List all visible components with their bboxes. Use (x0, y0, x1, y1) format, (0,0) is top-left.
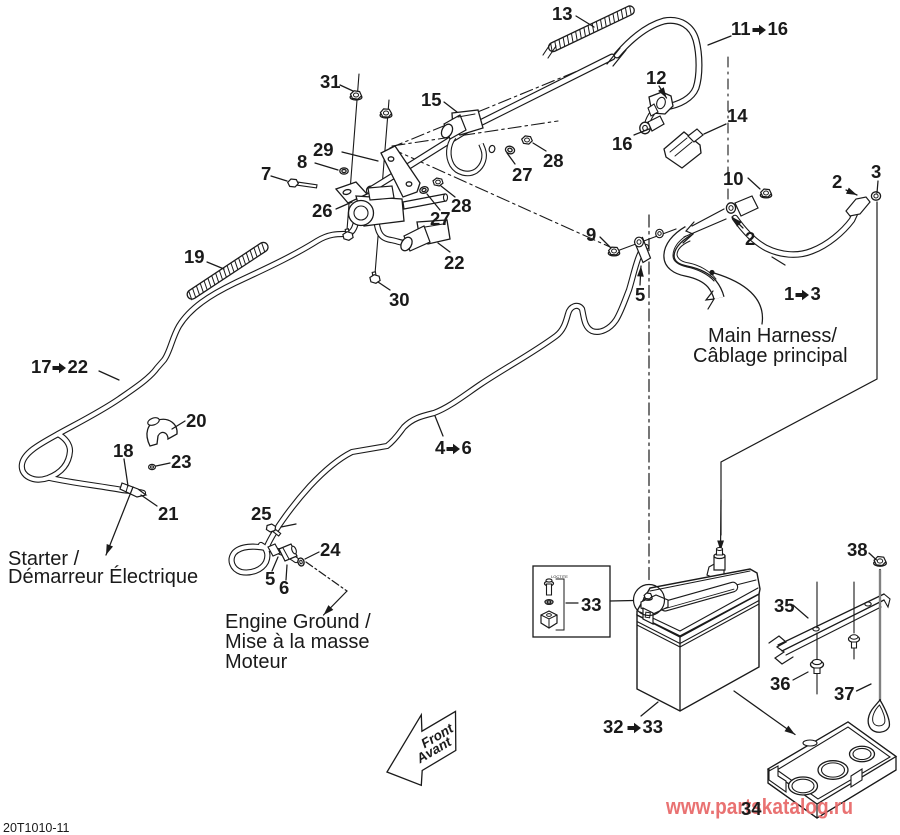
svg-text:29: 29 (313, 139, 334, 160)
svg-text:30: 30 (389, 289, 410, 310)
svg-text:19: 19 (184, 246, 205, 267)
svg-text:20T1010-11: 20T1010-11 (3, 821, 70, 835)
svg-text:14: 14 (727, 105, 748, 126)
svg-text:2: 2 (745, 228, 755, 249)
svg-text:Engine Ground /: Engine Ground / (225, 611, 371, 633)
svg-text:26: 26 (312, 200, 333, 221)
svg-text:3: 3 (871, 161, 881, 182)
svg-text:25: 25 (251, 503, 272, 524)
svg-text:6: 6 (279, 577, 289, 598)
svg-text:33: 33 (643, 716, 664, 737)
svg-text:23: 23 (171, 451, 192, 472)
svg-text:31: 31 (320, 71, 341, 92)
svg-text:17: 17 (31, 356, 52, 377)
svg-text:Main Harness/: Main Harness/ (708, 325, 837, 347)
svg-text:2: 2 (832, 171, 842, 192)
svg-text:24: 24 (320, 539, 341, 560)
svg-text:Câblage principal: Câblage principal (693, 345, 848, 367)
svg-text:34: 34 (741, 798, 762, 819)
svg-text:5: 5 (265, 568, 275, 589)
svg-text:Moteur: Moteur (225, 651, 288, 673)
svg-text:38: 38 (847, 539, 868, 560)
svg-text:37: 37 (834, 683, 855, 704)
svg-text:27: 27 (512, 164, 533, 185)
svg-text:4: 4 (435, 437, 446, 458)
svg-text:16: 16 (768, 18, 789, 39)
svg-text:35: 35 (774, 595, 795, 616)
svg-text:27: 27 (430, 208, 451, 229)
svg-text:12: 12 (646, 67, 667, 88)
svg-text:3: 3 (811, 283, 821, 304)
svg-text:16: 16 (612, 133, 633, 154)
svg-text:8: 8 (297, 151, 307, 172)
svg-text:22: 22 (68, 356, 89, 377)
svg-text:7: 7 (261, 163, 271, 184)
svg-text:21: 21 (158, 503, 179, 524)
svg-text:36: 36 (770, 673, 791, 694)
svg-text:1: 1 (784, 283, 794, 304)
svg-text:28: 28 (543, 150, 564, 171)
svg-text:5: 5 (635, 284, 645, 305)
svg-text:LOCTITE: LOCTITE (551, 574, 568, 579)
svg-text:11: 11 (731, 18, 751, 39)
svg-text:32: 32 (603, 716, 624, 737)
svg-text:13: 13 (552, 3, 573, 24)
svg-text:28: 28 (451, 195, 472, 216)
svg-text:9: 9 (586, 224, 596, 245)
svg-text:15: 15 (421, 89, 442, 110)
svg-text:33: 33 (581, 594, 602, 615)
svg-text:18: 18 (113, 440, 134, 461)
svg-text:6: 6 (462, 437, 472, 458)
svg-text:10: 10 (723, 168, 744, 189)
svg-text:20: 20 (186, 410, 207, 431)
svg-text:22: 22 (444, 252, 465, 273)
svg-text:Démarreur Électrique: Démarreur Électrique (8, 565, 198, 588)
svg-text:Mise à la masse: Mise à la masse (225, 631, 370, 653)
